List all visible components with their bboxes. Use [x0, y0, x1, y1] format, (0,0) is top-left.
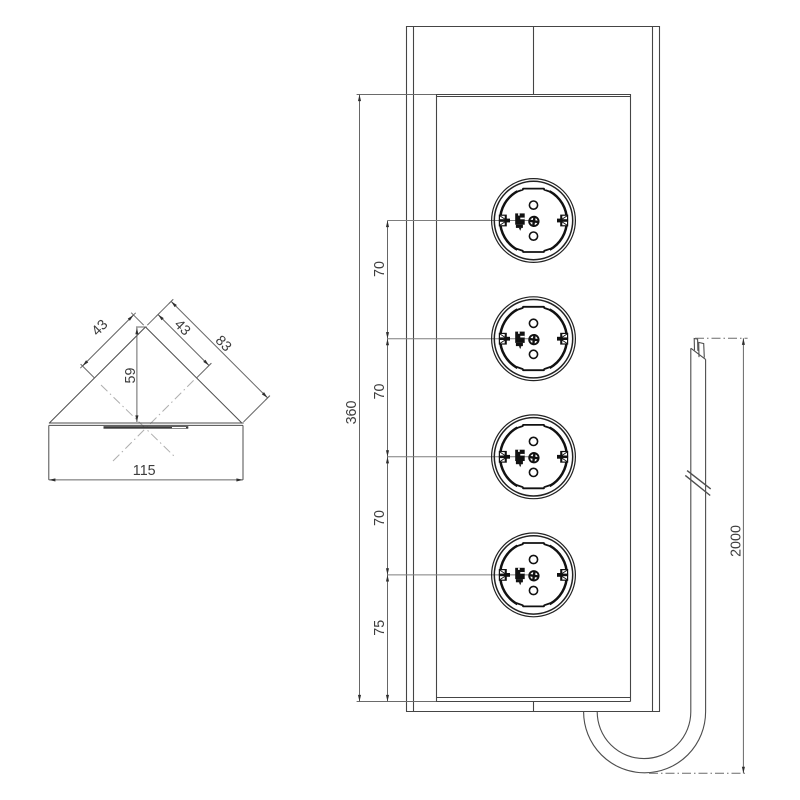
- svg-text:70: 70: [372, 510, 388, 526]
- svg-text:2000: 2000: [728, 525, 744, 557]
- svg-text:59: 59: [123, 368, 139, 384]
- svg-text:70: 70: [372, 261, 388, 277]
- svg-text:360: 360: [344, 401, 360, 425]
- svg-text:115: 115: [133, 463, 156, 479]
- svg-text:75: 75: [372, 620, 388, 636]
- svg-text:70: 70: [372, 384, 388, 400]
